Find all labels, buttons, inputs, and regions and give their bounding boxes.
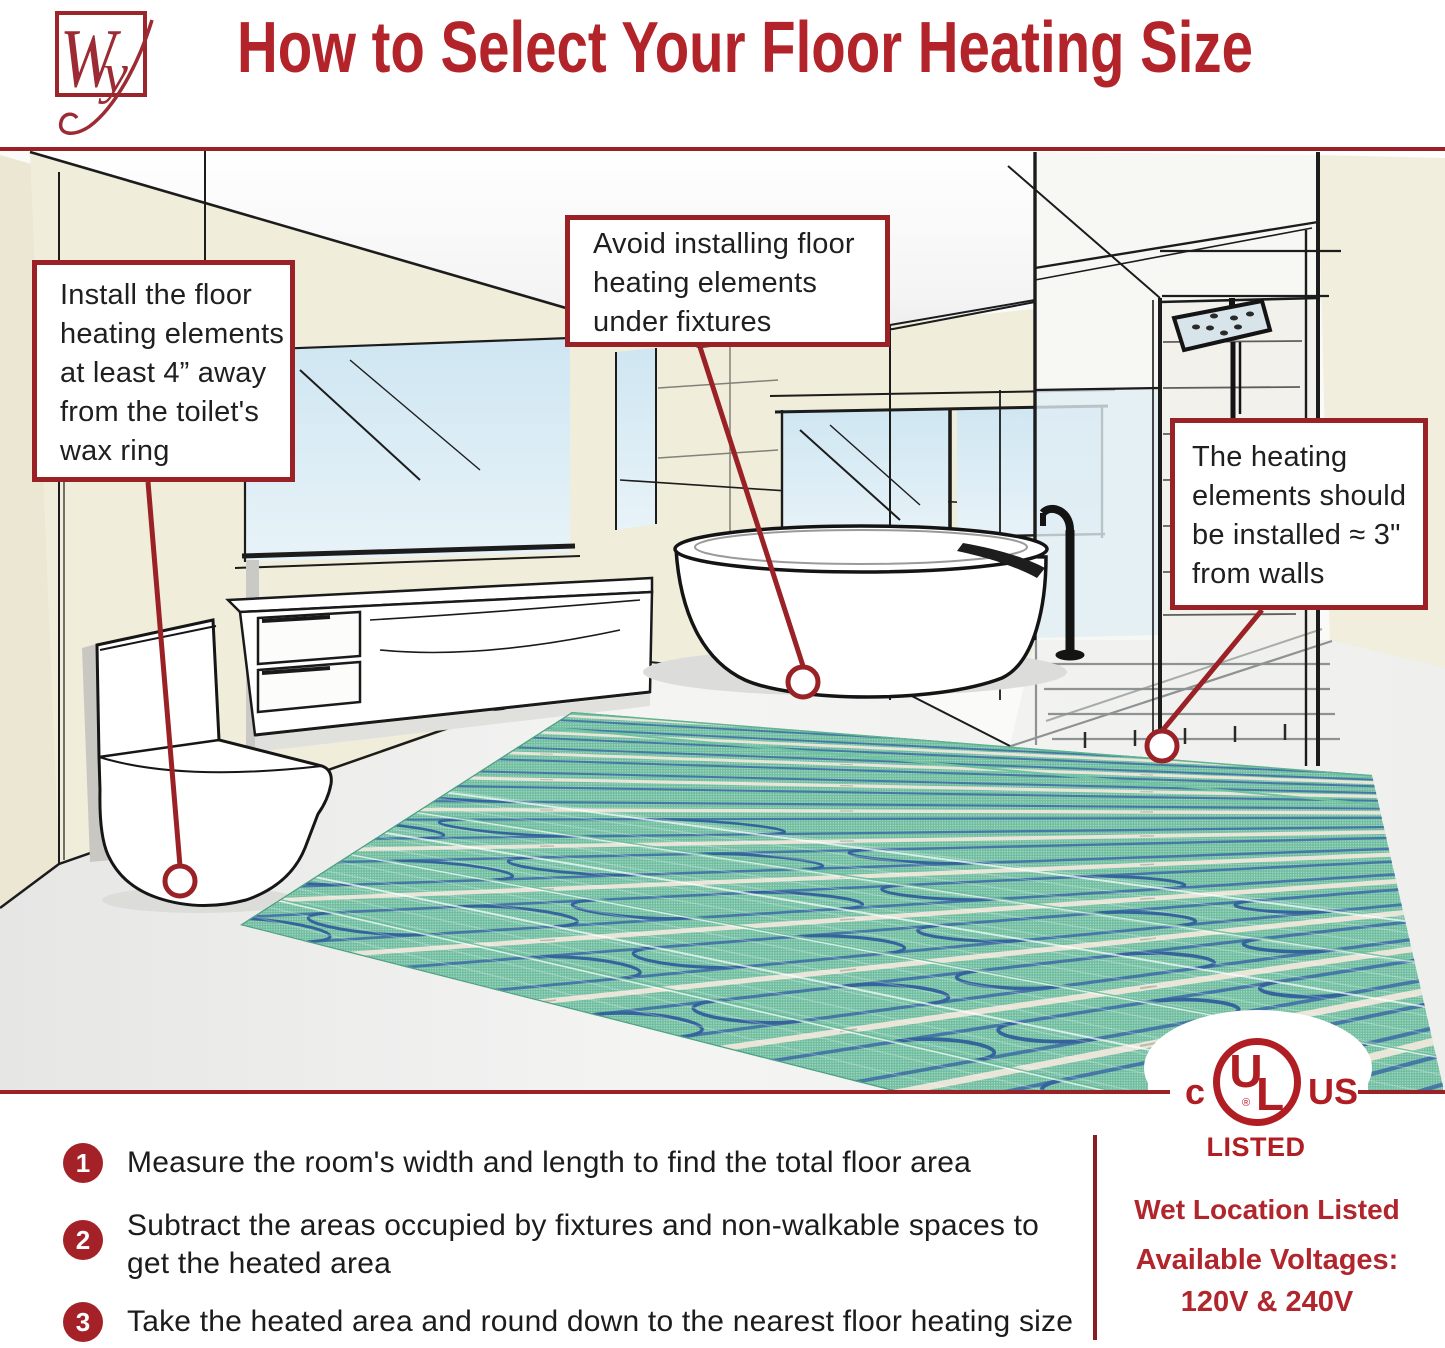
svg-text:LISTED: LISTED [1206,1132,1305,1162]
svg-text:L: L [1256,1068,1284,1120]
svg-text:c: c [1185,1071,1205,1112]
svg-text:y: y [98,43,128,105]
svg-text:®: ® [1242,1097,1250,1109]
svg-text:US: US [1308,1071,1358,1112]
